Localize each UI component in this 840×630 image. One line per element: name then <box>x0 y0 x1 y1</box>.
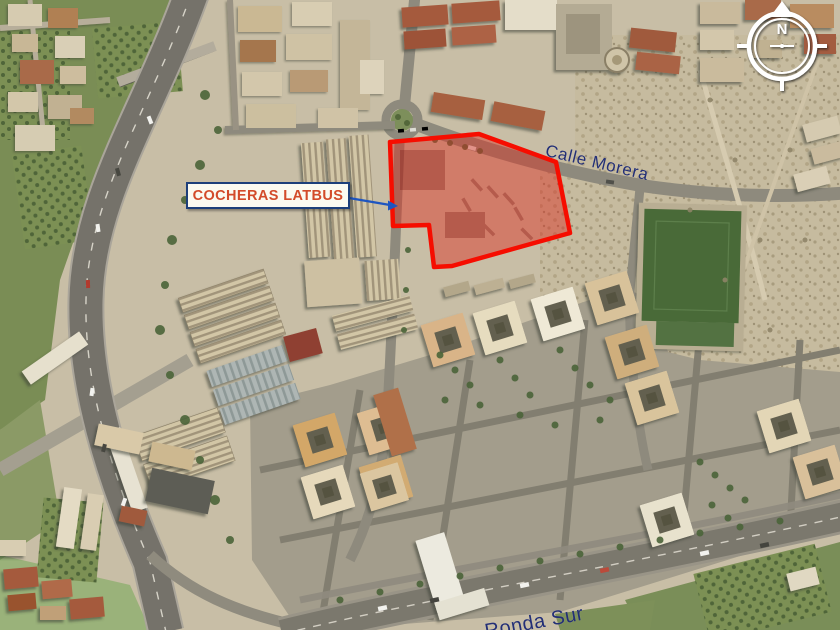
sports-field <box>635 203 747 352</box>
compass-north-letter: N <box>777 21 788 38</box>
site-label-box: COCHERAS LATBUS <box>186 182 350 209</box>
aerial-map-view: N COCHERAS LATBUS Calle Morera Ronda Sur <box>0 0 840 630</box>
site-label-text: COCHERAS LATBUS <box>193 188 344 204</box>
aerial-basemap: N <box>0 0 840 630</box>
